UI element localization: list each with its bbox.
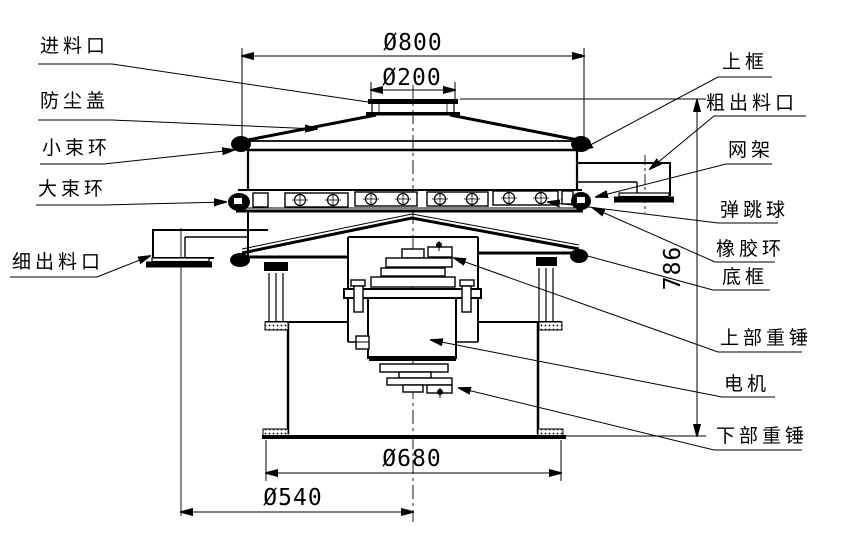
dimension-base-diameter: Ø680: [266, 440, 561, 481]
dim-680-text: Ø680: [382, 446, 441, 472]
screen-cone: [242, 214, 579, 253]
dim-786-text: 786: [660, 246, 686, 291]
label-bouncing-ball: 弹跳球: [720, 199, 789, 221]
label-large-clamp-ring: 大束环: [38, 178, 107, 200]
motor-body: [356, 298, 456, 361]
upper-frame: [248, 150, 577, 190]
dim-540-text: Ø540: [263, 485, 322, 511]
leader-dust-cover: [38, 120, 317, 129]
label-mesh-frame: 网架: [728, 139, 774, 161]
label-motor: 电机: [724, 373, 770, 395]
label-feed-inlet: 进料口: [40, 35, 109, 57]
lower-weight: [380, 364, 452, 398]
label-fine-outlet: 细出料口: [12, 251, 104, 273]
dimension-outlet-circle: Ø540: [181, 485, 413, 512]
bolt-icon: [351, 280, 365, 286]
dim-200-text: Ø200: [382, 65, 441, 91]
label-coarse-outlet: 粗出料口: [706, 92, 798, 114]
dust-cover: [231, 115, 591, 152]
drawing-canvas: Ø800 Ø200 786 Ø680 Ø540: [0, 0, 860, 539]
vibrating-sieve-drawing: Ø800 Ø200 786 Ø680 Ø540: [0, 0, 860, 539]
dim-800-text: Ø800: [383, 30, 442, 56]
coarse-outlet-spout: [578, 163, 674, 203]
label-rubber-ring: 橡胶环: [716, 238, 785, 260]
label-small-clamp-ring: 小束环: [42, 137, 111, 159]
label-lower-weight: 下部重锤: [716, 425, 808, 447]
leader-large-clamp-ring: [36, 202, 226, 205]
feed-inlet: [366, 99, 460, 116]
label-upper-weight: 上部重锤: [720, 327, 812, 349]
bolt-icon: [460, 280, 474, 286]
label-bottom-frame: 底框: [722, 266, 768, 288]
label-upper-frame: 上框: [722, 51, 768, 73]
mesh-frame-band: [228, 190, 591, 211]
label-dust-cover: 防尘盖: [40, 90, 109, 112]
leader-mesh-frame: [596, 164, 772, 197]
